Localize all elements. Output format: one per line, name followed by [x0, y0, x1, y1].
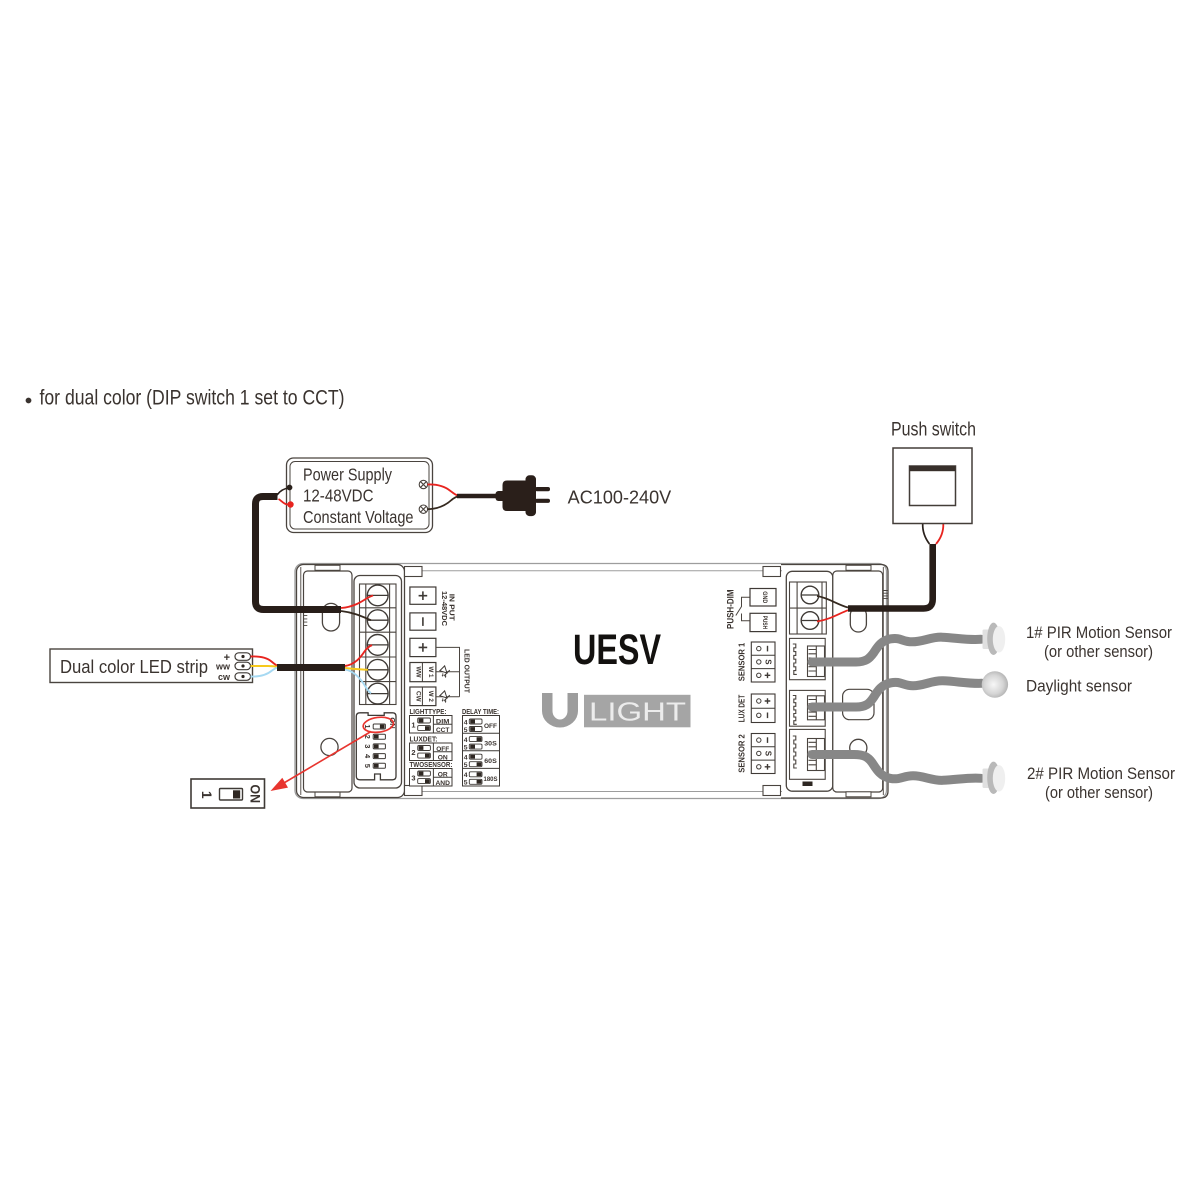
svg-text:LIGHT: LIGHT	[589, 697, 686, 727]
svg-text:5: 5	[464, 762, 468, 769]
svg-text:1: 1	[411, 721, 415, 730]
svg-text:WW: WW	[415, 667, 422, 678]
svg-text:LUX DET: LUX DET	[738, 695, 747, 723]
svg-text:(or other sensor): (or other sensor)	[1044, 642, 1153, 661]
svg-text:LUXDET:: LUXDET:	[410, 735, 438, 744]
svg-text:4: 4	[464, 737, 468, 744]
svg-text:CW: CW	[415, 691, 422, 702]
svg-text:PUSH: PUSH	[761, 616, 768, 630]
svg-text:4: 4	[464, 772, 468, 779]
svg-text:OR: OR	[438, 771, 448, 778]
svg-text:IN PUT: IN PUT	[448, 594, 455, 622]
svg-text:2# PIR Motion Sensor: 2# PIR Motion Sensor	[1027, 764, 1175, 783]
svg-text:for dual color (DIP switch 1 s: for dual color (DIP switch 1 set to CCT)	[40, 387, 345, 410]
svg-text:PUSH-DIM: PUSH-DIM	[726, 590, 736, 630]
svg-text:12-48VDC: 12-48VDC	[440, 591, 447, 626]
svg-text:DELAY TIME:: DELAY TIME:	[462, 707, 499, 716]
svg-text:2: 2	[411, 748, 415, 757]
svg-text:S: S	[763, 751, 772, 757]
svg-text:3: 3	[363, 744, 372, 748]
svg-text:180S: 180S	[484, 776, 498, 783]
svg-text:W 1: W 1	[427, 667, 434, 678]
svg-text:30S: 30S	[484, 741, 497, 748]
svg-text:4: 4	[464, 755, 468, 762]
svg-text:(or other sensor): (or other sensor)	[1045, 783, 1153, 802]
svg-text:12-48VDC: 12-48VDC	[303, 486, 374, 506]
svg-text:SENSOR 2: SENSOR 2	[738, 734, 747, 773]
svg-text:AC100-240V: AC100-240V	[568, 487, 672, 507]
svg-text:CCT: CCT	[436, 727, 450, 734]
svg-text:LIGHTTYPE:: LIGHTTYPE:	[410, 707, 447, 716]
svg-text:W 2: W 2	[427, 691, 434, 702]
svg-text:LED OUTPUT: LED OUTPUT	[463, 649, 470, 694]
svg-text:SENSOR 1: SENSOR 1	[738, 642, 747, 681]
svg-text:ww: ww	[215, 662, 231, 672]
svg-text:5: 5	[363, 764, 372, 768]
svg-text:OFF: OFF	[436, 746, 449, 753]
svg-text:OFF: OFF	[484, 723, 497, 730]
svg-text:1: 1	[199, 791, 215, 799]
svg-text:S: S	[763, 659, 772, 665]
svg-text:ON: ON	[247, 785, 263, 804]
svg-text:5: 5	[464, 780, 468, 787]
svg-text:5: 5	[464, 727, 468, 734]
svg-text:cw: cw	[218, 672, 231, 682]
svg-text:5: 5	[464, 744, 468, 751]
svg-text:AND: AND	[435, 780, 450, 787]
svg-text:UESV: UESV	[573, 626, 661, 674]
svg-text:Push switch: Push switch	[891, 419, 976, 441]
svg-text:60S: 60S	[484, 758, 497, 765]
svg-text:4: 4	[464, 719, 468, 726]
svg-text:Power Supply: Power Supply	[303, 464, 392, 484]
svg-text:TWOSENSOR:: TWOSENSOR:	[410, 760, 453, 769]
svg-text:GND: GND	[761, 591, 768, 603]
svg-text:3: 3	[411, 774, 415, 783]
svg-text:DIM: DIM	[436, 718, 450, 725]
svg-text:1# PIR Motion Sensor: 1# PIR Motion Sensor	[1026, 623, 1172, 642]
svg-text:Constant Voltage: Constant Voltage	[303, 507, 414, 527]
svg-text:Daylight sensor: Daylight sensor	[1026, 677, 1132, 696]
svg-text:Dual color LED strip: Dual color LED strip	[60, 657, 208, 677]
